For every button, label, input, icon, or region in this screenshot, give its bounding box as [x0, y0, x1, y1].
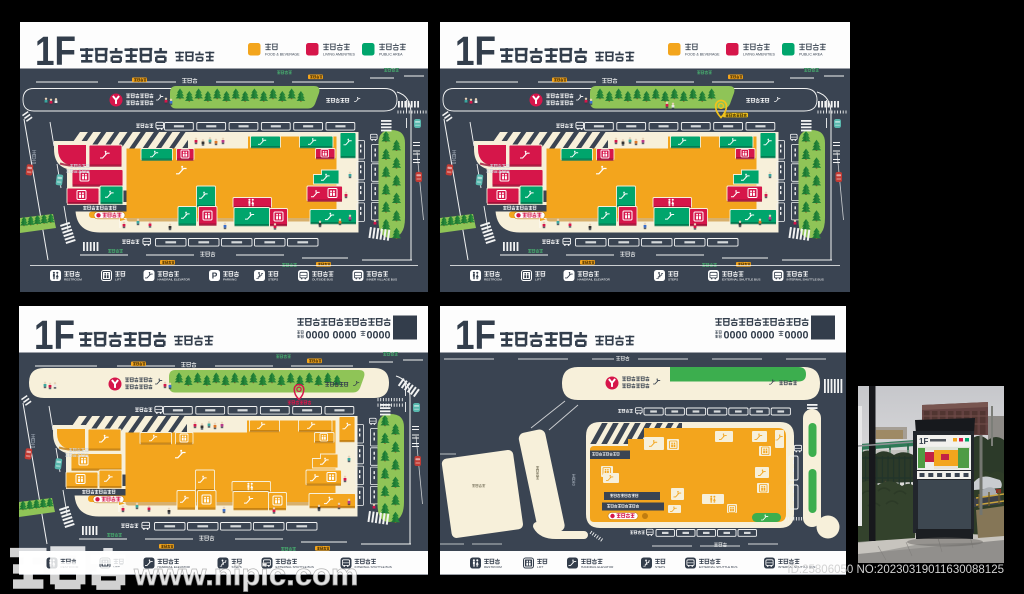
- svg-text:1F: 1F: [34, 312, 75, 358]
- svg-text:FOOD & BEVERAGE: FOOD & BEVERAGE: [685, 53, 720, 57]
- svg-text:LIVING AMENITIES: LIVING AMENITIES: [323, 53, 356, 57]
- svg-text:PARKING: PARKING: [223, 277, 237, 281]
- svg-text:EXTERNAL SHUTTLE BUS: EXTERNAL SHUTTLE BUS: [722, 277, 760, 281]
- svg-text:FOOD & BEVERAGE: FOOD & BEVERAGE: [265, 53, 300, 57]
- svg-text:PUBLIC AREA: PUBLIC AREA: [379, 53, 403, 57]
- svg-text:1F: 1F: [919, 437, 928, 446]
- svg-text:STEPS: STEPS: [655, 565, 665, 569]
- svg-text:RESTROOM: RESTROOM: [64, 277, 82, 281]
- svg-text:HANDRAIL ELEVATOR: HANDRAIL ELEVATOR: [578, 277, 611, 281]
- svg-text:1F: 1F: [455, 312, 496, 358]
- svg-text:INNER VILLAGE BUS: INNER VILLAGE BUS: [367, 277, 398, 281]
- svg-text:STEPS: STEPS: [668, 277, 678, 281]
- svg-text:0000 0000: 0000 0000: [306, 330, 357, 342]
- svg-text:1F: 1F: [35, 28, 76, 74]
- svg-text:PUBLIC AREA: PUBLIC AREA: [799, 53, 823, 57]
- svg-text:OUTSIDE BUS: OUTSIDE BUS: [312, 277, 333, 281]
- svg-text:RESTROOM: RESTROOM: [484, 565, 502, 569]
- svg-text:HANDRAIL ELEVATOR: HANDRAIL ELEVATOR: [158, 277, 191, 281]
- svg-text:0000 0000: 0000 0000: [724, 330, 775, 342]
- svg-text:LIFT: LIFT: [115, 277, 121, 281]
- svg-text:1F: 1F: [455, 28, 496, 74]
- svg-text:LIFT: LIFT: [537, 565, 543, 569]
- svg-text:P: P: [212, 271, 218, 281]
- svg-text:STEPS: STEPS: [268, 277, 278, 281]
- svg-text:0000: 0000: [367, 330, 391, 342]
- svg-text:LIVING AMENITIES: LIVING AMENITIES: [743, 53, 776, 57]
- svg-text:www.nipic.com: www.nipic.com: [133, 557, 359, 592]
- svg-text:LIFT: LIFT: [535, 277, 541, 281]
- svg-text:HANDRAIL ELEVATOR: HANDRAIL ELEVATOR: [581, 565, 614, 569]
- svg-text:RESTROOM: RESTROOM: [484, 277, 502, 281]
- svg-text:0000: 0000: [785, 330, 809, 342]
- svg-text:INTERNAL SHUTTLE BUS: INTERNAL SHUTTLE BUS: [787, 277, 824, 281]
